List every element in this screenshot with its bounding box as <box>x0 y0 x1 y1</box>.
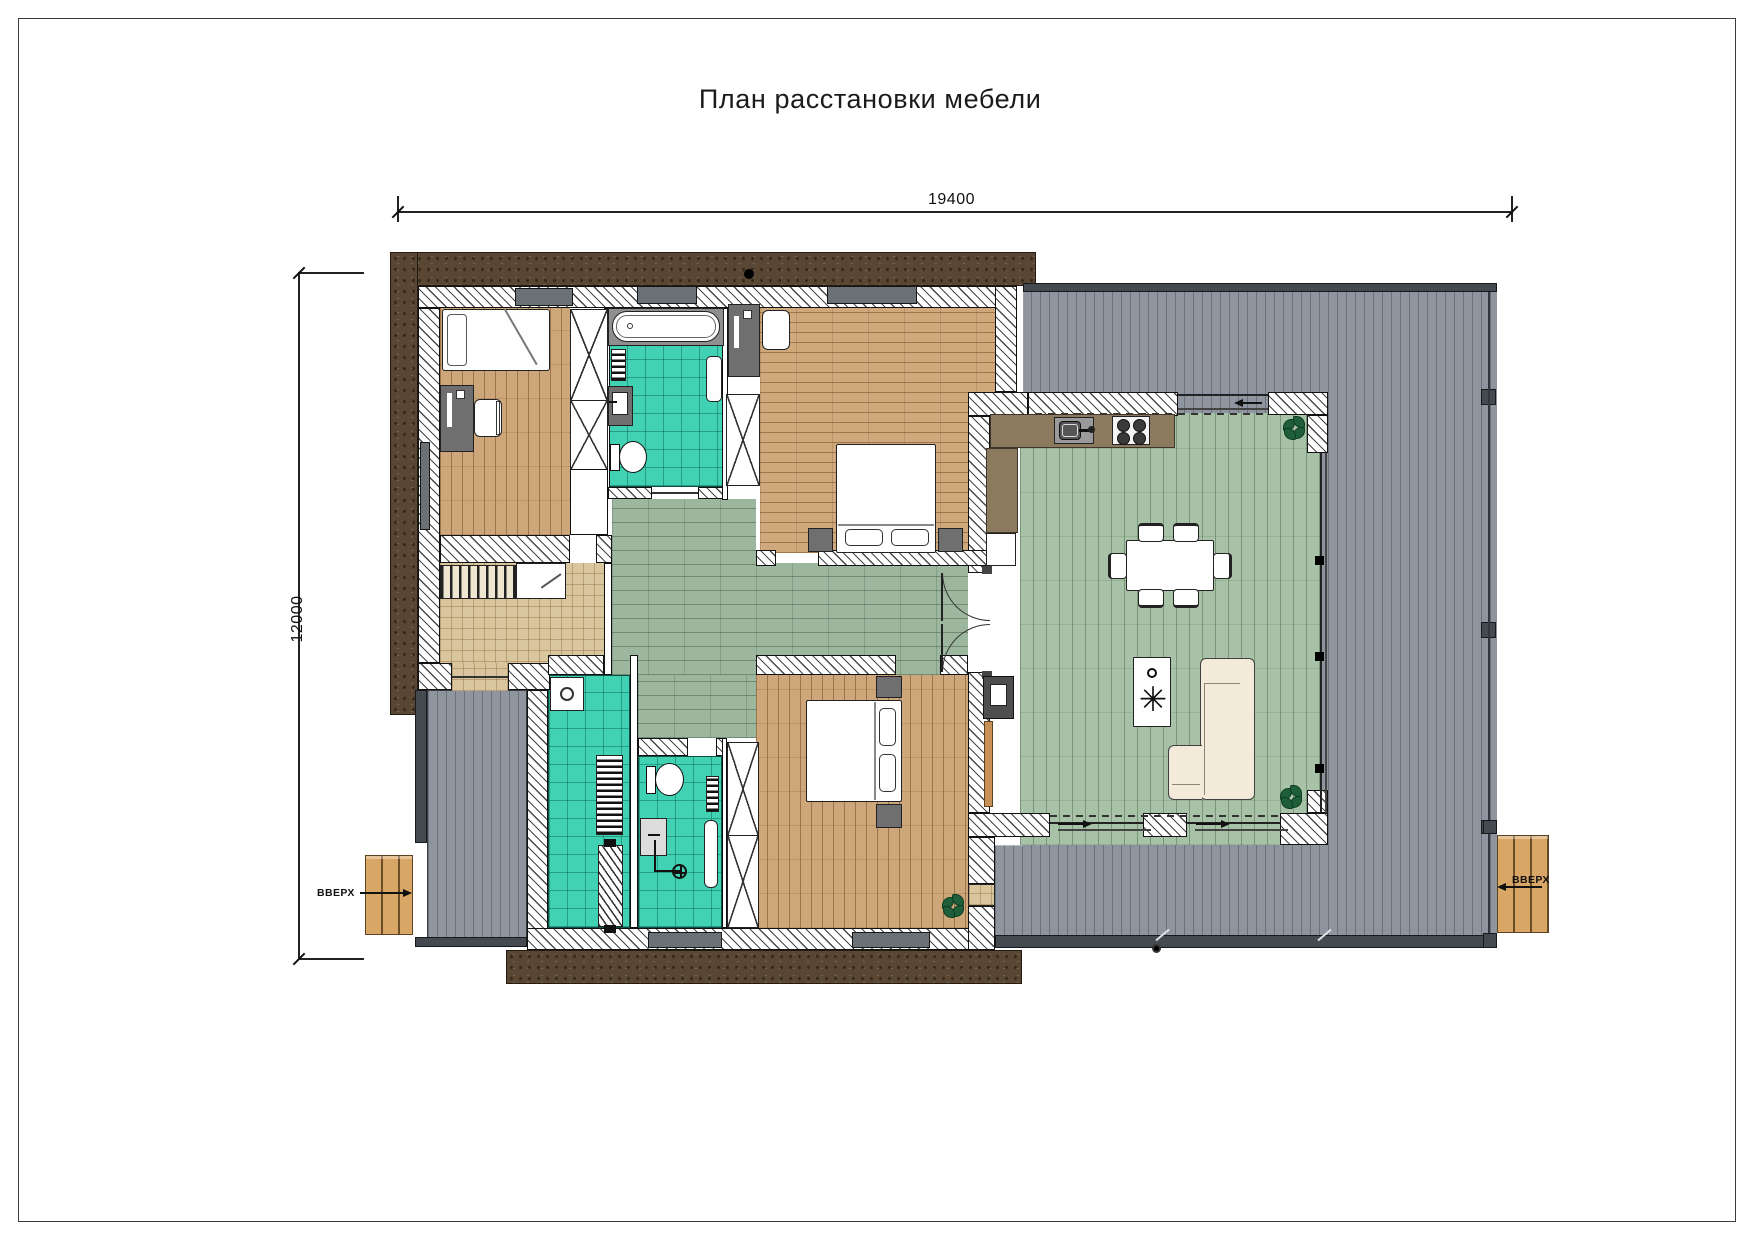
dining-chair <box>1138 523 1164 542</box>
wall-bedroom2-bottom-a <box>756 550 776 566</box>
wall-laundry-right <box>630 655 638 928</box>
towel-rail <box>706 776 719 812</box>
dining-chair <box>1138 589 1164 608</box>
dimension-ext-left-top <box>298 272 364 274</box>
window-bathroom2-bottom <box>648 932 722 948</box>
ground-band-bottom <box>506 950 1022 984</box>
shower-pipe <box>654 840 656 872</box>
doormat <box>440 565 516 599</box>
sofa-seat-line <box>1204 683 1240 795</box>
bed-line <box>874 702 876 800</box>
wall-entry-bottom-b <box>508 663 550 690</box>
dining-chair <box>1108 553 1127 579</box>
bed-pillow <box>447 314 467 366</box>
rack-end <box>604 839 616 847</box>
bed-pillow <box>891 529 929 546</box>
terrace-bottom-edge <box>995 935 1497 948</box>
washing-machine <box>550 677 584 711</box>
shower-head-cross <box>674 872 685 874</box>
bed-pillow <box>845 529 883 546</box>
wall-bedroom3-top-a <box>756 655 896 675</box>
bath-mat <box>704 820 718 888</box>
window-bedroom1-left <box>420 442 430 530</box>
stove <box>1112 416 1150 445</box>
ground-band-top <box>396 252 1036 286</box>
sink-basin-inner <box>1062 424 1078 437</box>
up-arrow-right <box>1500 886 1542 888</box>
wall-kitchen-corner <box>968 392 1028 416</box>
wall-entry-right <box>604 563 612 675</box>
door-leaf <box>941 573 943 621</box>
sink-tap-icon <box>648 834 660 836</box>
drying-rack <box>598 845 623 927</box>
desk-item <box>456 390 465 399</box>
terrace-left <box>427 690 527 947</box>
chair-back <box>496 401 500 435</box>
coffee-table: ✳ <box>1133 657 1171 727</box>
kitchen-sink-basin <box>1059 421 1081 440</box>
dining-chair <box>1173 523 1199 542</box>
kitchen-faucet-knob <box>1088 426 1095 433</box>
slider-sill <box>1195 829 1288 831</box>
window-mullion <box>1315 556 1324 565</box>
cabinet-diagonal <box>541 573 562 588</box>
window-living-top-sill <box>1178 394 1268 396</box>
wall-laundry-top <box>548 655 604 675</box>
wall-bathroom1-bottom-a <box>608 487 652 499</box>
slide-arrow-bl <box>1058 823 1084 825</box>
decor-star-icon: ✳ <box>1135 680 1171 720</box>
stove-burner-icon <box>1133 432 1146 445</box>
dining-table <box>1126 540 1214 591</box>
wardrobe <box>727 742 759 836</box>
bed-line <box>838 524 934 526</box>
up-arrow-left <box>360 892 404 894</box>
window-living-top-sill2 <box>1178 408 1268 410</box>
media-console <box>984 721 993 807</box>
bathroom-sink <box>612 392 628 415</box>
floor-plan-sheet: План расстановки мебели 19400 12000 ВВЕР… <box>0 0 1754 1240</box>
nightstand <box>876 804 902 828</box>
gate-knob-icon <box>1152 944 1161 953</box>
desk-chair <box>762 310 790 350</box>
wall-living-corner-tr-b <box>1307 415 1328 453</box>
window-living-right-inner <box>1325 453 1327 813</box>
window-bedroom2-top <box>827 286 917 304</box>
roof-overhang-dashed-bottom <box>1050 815 1280 817</box>
terrace-corner-right-top <box>1483 820 1497 834</box>
window-bedroom1-top <box>515 288 573 306</box>
sofa-chaise-line <box>1172 749 1200 785</box>
kitchen-counter-side <box>986 448 1018 533</box>
terrace-top-edge <box>1023 283 1497 292</box>
window-bedroom3-bottom <box>852 932 930 948</box>
wardrobe <box>570 309 608 401</box>
wall-living-bottom-a <box>968 813 1050 837</box>
stairs-up-label-right: ВВЕРХ <box>1512 874 1550 886</box>
dining-chair <box>1213 553 1232 579</box>
slide-arrowhead-br <box>1221 820 1230 828</box>
shoe-cabinet <box>516 563 566 599</box>
toilet-bowl <box>655 763 684 796</box>
bed-pillow <box>879 708 896 746</box>
entry-door-threshold-line <box>452 676 508 678</box>
rack-end <box>604 925 616 933</box>
hallway-stub-floor <box>638 675 756 738</box>
washer-door-icon <box>560 687 574 701</box>
slide-arrowhead-top <box>1234 399 1243 407</box>
window-bathroom1-top <box>637 286 697 304</box>
towel-rail <box>611 349 626 381</box>
dimension-value-left: 12000 <box>289 579 307 659</box>
bathtub <box>612 311 720 342</box>
wardrobe <box>727 835 759 928</box>
door-jamb <box>982 566 992 574</box>
wall-top <box>418 286 1017 308</box>
desk-lamp-icon <box>447 393 452 427</box>
wardrobe <box>726 394 760 486</box>
sink-tap-icon <box>609 401 617 403</box>
shower-head-icon <box>672 864 687 879</box>
hallway-upper-arm-floor <box>612 499 756 565</box>
window-mullion <box>1315 652 1324 661</box>
sofa-main <box>1200 658 1255 800</box>
page-title: План расстановки мебели <box>699 84 1042 115</box>
slide-arrowhead-bl <box>1083 820 1092 828</box>
nightstand <box>876 676 902 698</box>
wall-bathroom2-top-a <box>638 738 688 756</box>
bedroom3-terrace-threshold <box>968 884 995 906</box>
wall-bedroom1-bottom-b <box>596 535 612 563</box>
dimension-line-top <box>398 211 1512 213</box>
fireplace <box>983 676 1014 719</box>
terrace-corner-right-bottom <box>1483 933 1497 948</box>
wall-bedroom2-right <box>995 286 1017 392</box>
window-living-right <box>1320 453 1322 813</box>
stove-burner-icon <box>1117 419 1130 432</box>
wall-living-corner-tr-a <box>1268 392 1328 415</box>
stove-burner-icon <box>1117 432 1130 445</box>
stove-burner-icon <box>1133 419 1146 432</box>
dimension-value-top: 19400 <box>928 191 975 209</box>
window-mullion <box>1315 764 1324 773</box>
wall-entry-bottom-a <box>418 663 452 690</box>
slide-arrow-br <box>1196 823 1222 825</box>
slider-sill <box>1058 829 1151 831</box>
kitchen-sink-unit <box>1054 417 1094 444</box>
door-threshold-mark <box>652 492 698 494</box>
desk-lamp-icon <box>734 316 739 348</box>
terrace-left-edge <box>415 690 427 843</box>
bathtub-drain-icon <box>627 323 633 329</box>
terrace-left-bottom-edge <box>415 937 527 947</box>
wall-living-bottom-b <box>1143 813 1187 837</box>
up-arrowhead-right <box>1497 883 1506 891</box>
wall-laundry-left <box>527 690 548 950</box>
wall-bedroom1-bottom-a <box>440 535 570 563</box>
bed-pillow <box>879 754 896 792</box>
wall-corner-bottom-right <box>968 837 995 884</box>
stairs-up-label-left: ВВЕРХ <box>317 887 355 899</box>
toilet-bowl <box>619 441 647 473</box>
dining-chair <box>1173 589 1199 608</box>
door-leaf <box>941 624 943 672</box>
kitchen-appliance <box>986 533 1016 566</box>
wardrobe-plain <box>570 469 608 535</box>
wardrobe <box>570 400 608 470</box>
nightstand <box>938 528 963 552</box>
up-arrowhead-left <box>403 889 412 897</box>
bath-shelf <box>706 356 722 402</box>
towel-radiator <box>596 755 623 835</box>
chimney-vent-icon <box>744 269 754 279</box>
terrace-edge-line <box>1488 292 1490 935</box>
nightstand <box>808 528 833 552</box>
dimension-ext-left-bottom <box>298 958 364 960</box>
ground-band-left <box>390 252 418 715</box>
sofa-chaise <box>1168 745 1202 800</box>
desk-item <box>743 310 752 319</box>
fireplace-inner <box>990 684 1007 706</box>
wall-corner-bottom-right-b <box>968 906 995 950</box>
decor-ring-icon <box>1147 668 1157 678</box>
